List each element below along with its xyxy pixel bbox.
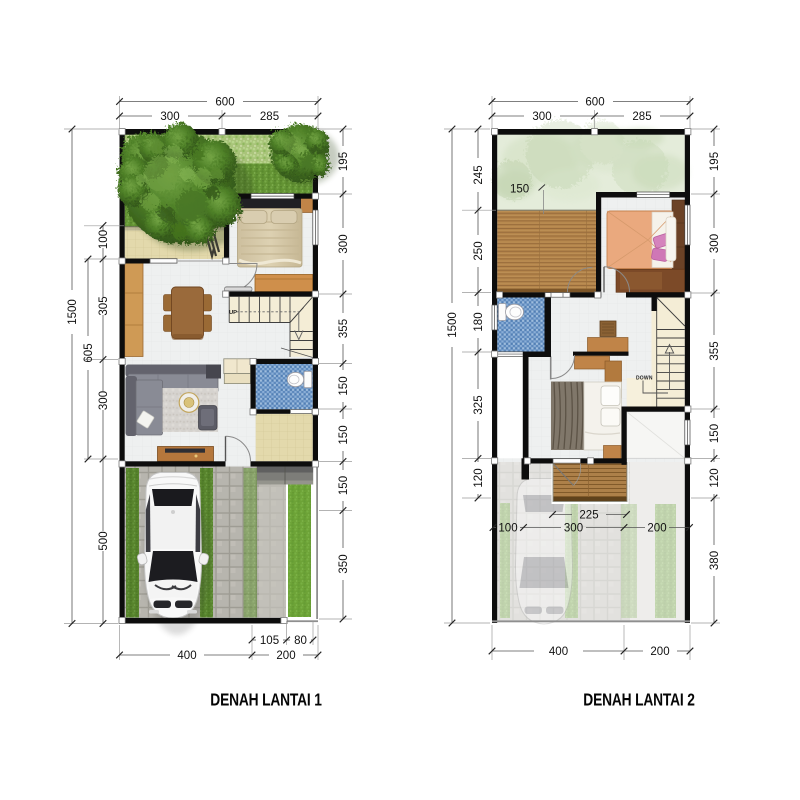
svg-text:150: 150 bbox=[338, 376, 350, 395]
svg-text:305: 305 bbox=[98, 296, 110, 315]
svg-text:150: 150 bbox=[709, 424, 721, 443]
svg-text:DOWN: DOWN bbox=[636, 376, 653, 382]
svg-text:600: 600 bbox=[585, 97, 604, 109]
svg-text:380: 380 bbox=[709, 551, 721, 570]
svg-text:355: 355 bbox=[338, 319, 350, 338]
svg-text:245: 245 bbox=[473, 165, 485, 184]
svg-text:300: 300 bbox=[98, 391, 110, 410]
svg-text:1500: 1500 bbox=[447, 312, 459, 338]
svg-text:150: 150 bbox=[338, 476, 350, 495]
svg-text:1500: 1500 bbox=[67, 299, 79, 325]
svg-text:300: 300 bbox=[338, 234, 350, 253]
svg-text:250: 250 bbox=[473, 241, 485, 260]
svg-text:355: 355 bbox=[709, 341, 721, 360]
svg-text:80: 80 bbox=[294, 635, 307, 647]
svg-text:300: 300 bbox=[160, 111, 179, 123]
svg-text:325: 325 bbox=[473, 395, 485, 414]
svg-text:285: 285 bbox=[632, 111, 651, 123]
svg-text:100: 100 bbox=[98, 230, 110, 249]
svg-text:120: 120 bbox=[709, 468, 721, 487]
svg-text:600: 600 bbox=[215, 97, 234, 109]
svg-text:500: 500 bbox=[98, 531, 110, 550]
svg-text:100: 100 bbox=[498, 523, 517, 535]
svg-text:105: 105 bbox=[260, 635, 279, 647]
svg-text:195: 195 bbox=[709, 152, 721, 171]
svg-text:350: 350 bbox=[338, 554, 350, 573]
svg-text:DENAH LANTAI 1: DENAH LANTAI 1 bbox=[210, 691, 322, 710]
svg-text:605: 605 bbox=[83, 343, 95, 362]
svg-text:120: 120 bbox=[473, 468, 485, 487]
svg-text:400: 400 bbox=[177, 650, 196, 662]
svg-text:400: 400 bbox=[549, 646, 568, 658]
svg-text:150: 150 bbox=[510, 184, 529, 196]
svg-text:180: 180 bbox=[473, 312, 485, 331]
svg-text:DENAH LANTAI 2: DENAH LANTAI 2 bbox=[583, 691, 695, 710]
svg-text:300: 300 bbox=[564, 523, 583, 535]
svg-text:UP: UP bbox=[229, 310, 237, 316]
svg-text:300: 300 bbox=[532, 111, 551, 123]
svg-text:200: 200 bbox=[276, 650, 295, 662]
svg-text:195: 195 bbox=[338, 152, 350, 171]
svg-text:150: 150 bbox=[338, 425, 350, 444]
svg-text:300: 300 bbox=[709, 234, 721, 253]
svg-text:225: 225 bbox=[579, 510, 598, 522]
svg-text:285: 285 bbox=[260, 111, 279, 123]
svg-text:200: 200 bbox=[650, 646, 669, 658]
svg-text:200: 200 bbox=[647, 523, 666, 535]
